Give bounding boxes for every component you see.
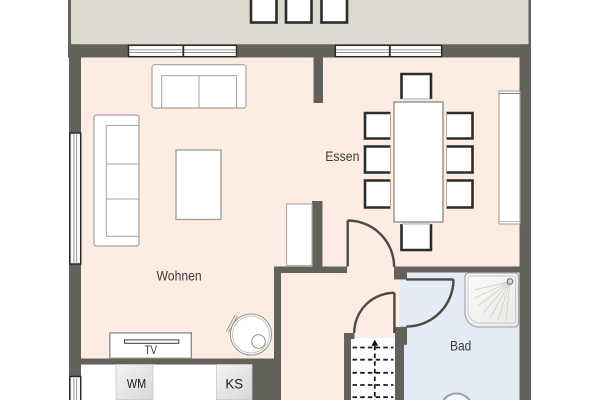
svg-text:WM: WM: [127, 376, 146, 391]
svg-text:Essen: Essen: [325, 149, 359, 164]
svg-text:TV: TV: [145, 345, 158, 357]
svg-text:KS: KS: [225, 377, 243, 392]
svg-text:Bad: Bad: [450, 339, 471, 354]
svg-text:Wohnen: Wohnen: [157, 268, 202, 283]
